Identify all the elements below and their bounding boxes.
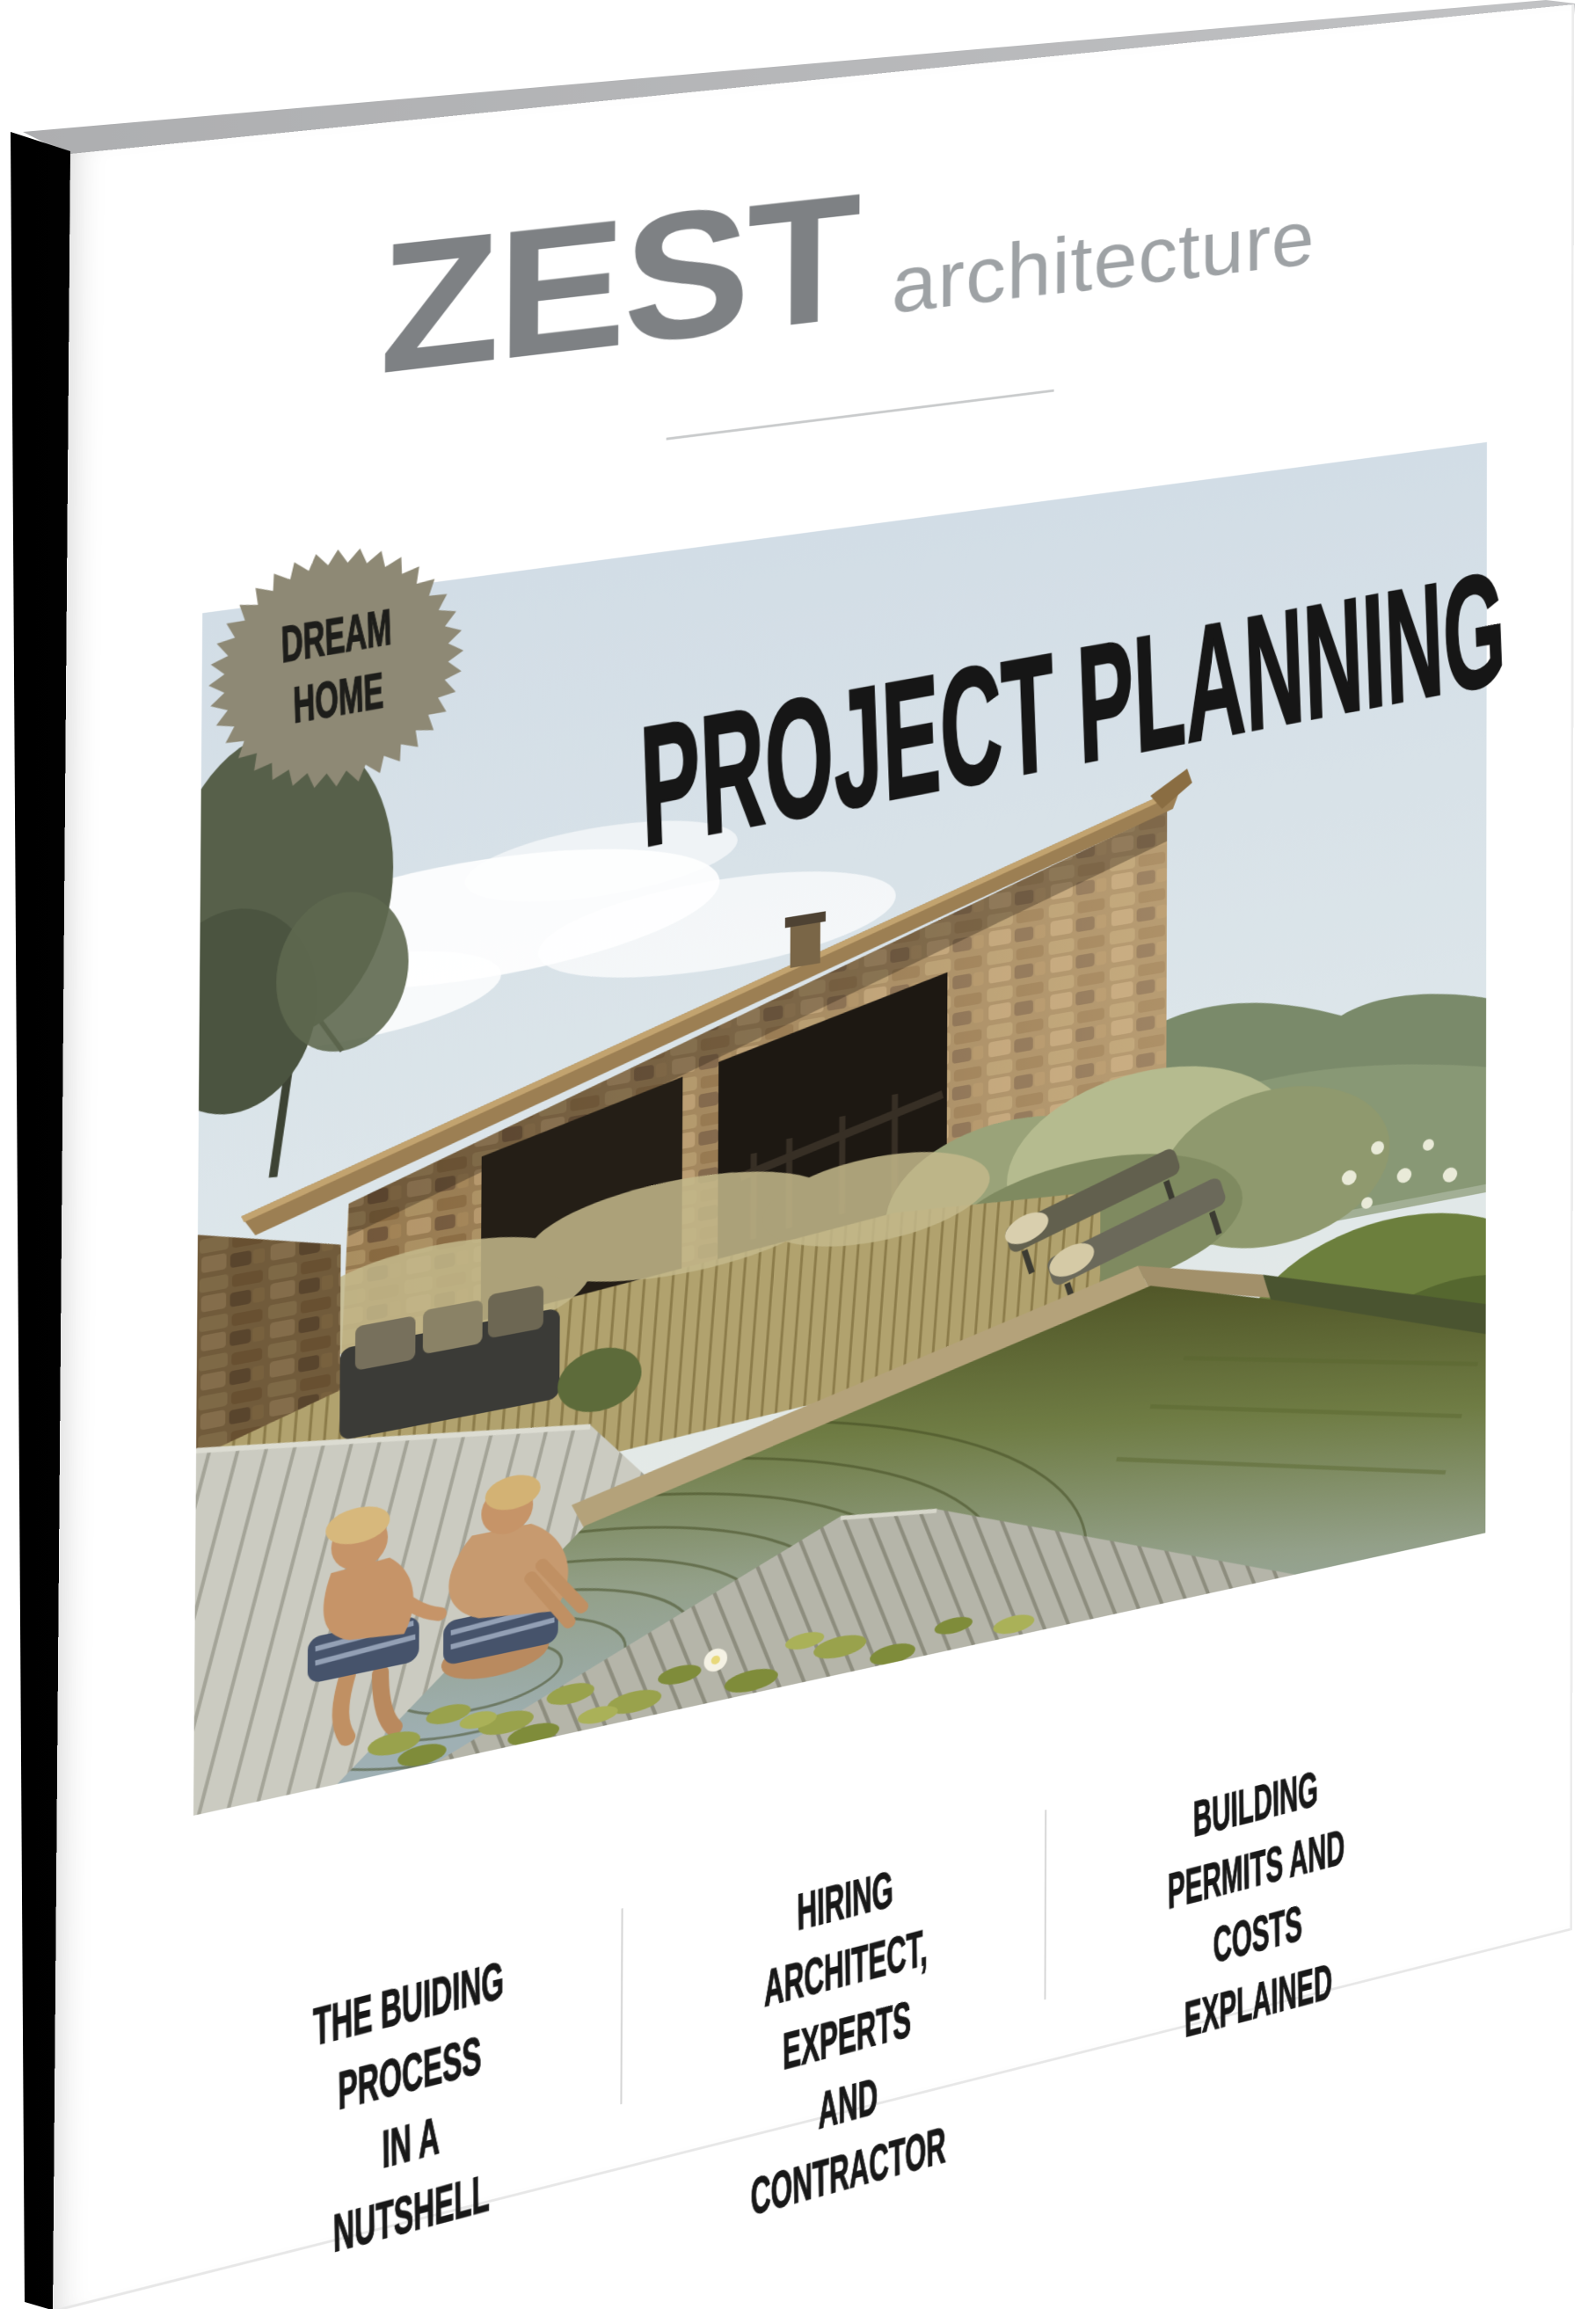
teaser-item-3: BUILDING PERMITS AND COSTS EXPLAINED — [1072, 1729, 1437, 2147]
brand-descriptor: architecture — [892, 199, 1315, 325]
teaser-list: THE BUIDING PROCESS IN A NUTSHELL HIRING… — [199, 1729, 1437, 2309]
teaser-item-1: THE BUIDING PROCESS IN A NUTSHELL — [199, 1920, 615, 2309]
brand-logo: ZEST architecture — [68, 91, 1574, 440]
brand-name: ZEST — [379, 166, 859, 402]
logo-divider-rule — [667, 390, 1054, 441]
badge-label: DREAM HOME — [280, 597, 394, 739]
teaser-item-2: HIRING ARCHITECT, EXPERTS AND CONTRACTOR — [650, 1822, 1039, 2256]
book-mockup: ZEST architecture — [0, 0, 1596, 2309]
book-front-cover: ZEST architecture — [53, 4, 1574, 2309]
